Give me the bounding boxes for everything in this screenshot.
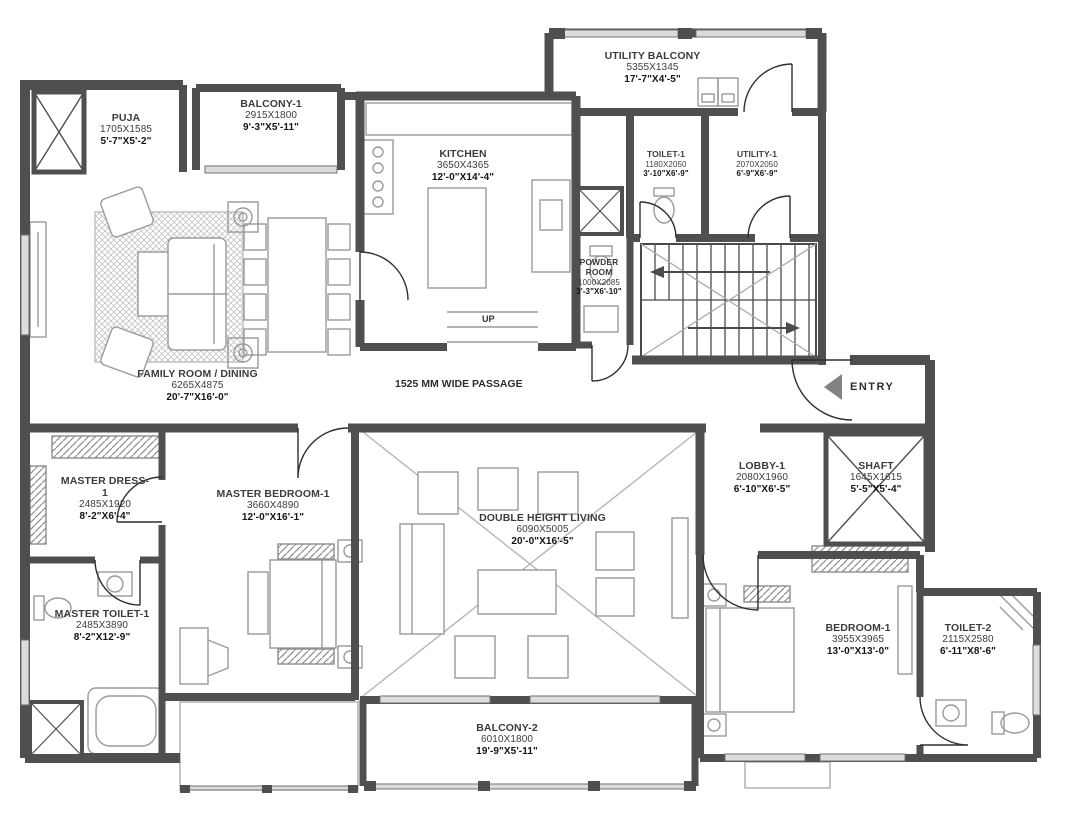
room-label-family-room: FAMILY ROOM / DINING 6265X4875 20'-7"X16… xyxy=(105,368,290,403)
room-dims-ft: 5'-5"X5'-4" xyxy=(828,484,924,496)
room-name: UTILITY BALCONY xyxy=(565,50,740,62)
room-label-utility-balcony: UTILITY BALCONY 5355X1345 17'-7"X4'-5" xyxy=(565,50,740,85)
chair xyxy=(478,468,518,510)
room-dims-mm: 2080X1960 xyxy=(716,472,808,484)
entry-door xyxy=(792,360,852,420)
room-name: LOBBY-1 xyxy=(716,460,808,472)
wc-icon xyxy=(1001,713,1029,733)
room-dims-ft: 13'-0"X13'-0" xyxy=(802,646,914,658)
utility-balcony-door xyxy=(744,64,792,112)
basin xyxy=(936,700,966,726)
toilet2-door xyxy=(920,697,968,745)
entry-label: ENTRY xyxy=(850,381,894,393)
master-bedroom-door xyxy=(298,428,348,478)
room-dims-ft: 9'-3"X5'-11" xyxy=(200,122,342,134)
room-dims-mm: 2915X1800 xyxy=(200,110,342,122)
room-name: TOILET-1 xyxy=(630,150,702,160)
chair xyxy=(528,636,568,678)
room-dims-ft: 17'-7"X4'-5" xyxy=(565,74,740,86)
room-dims-ft: 12'-0"X14'-4" xyxy=(398,172,528,184)
wc-tank xyxy=(590,246,612,256)
sofa xyxy=(400,524,444,634)
room-name: BALCONY-1 xyxy=(200,98,342,110)
room-name: MASTER BEDROOM-1 xyxy=(198,488,348,500)
up-label: UP xyxy=(482,314,495,324)
room-name: POWDER ROOM xyxy=(568,258,630,278)
terrace xyxy=(745,762,830,788)
room-name: BALCONY-2 xyxy=(432,722,582,734)
side-table xyxy=(702,714,726,736)
room-dims-mm: 1000X2085 xyxy=(568,278,630,287)
room-label-shaft: SHAFT 1645X1615 5'-5"X5'-4" xyxy=(828,460,924,495)
wardrobe xyxy=(52,436,160,458)
bed xyxy=(706,608,794,712)
room-label-puja: PUJA 1705X1585 5'-7"X5'-2" xyxy=(72,112,180,147)
room-label-double-height-living: DOUBLE HEIGHT LIVING 6090X5005 20'-0"X16… xyxy=(450,512,635,547)
room-dims-ft: 6'-10"X6'-5" xyxy=(716,484,808,496)
room-dims-mm: 1180X2050 xyxy=(630,160,702,169)
passage-label: 1525 MM WIDE PASSAGE xyxy=(395,378,575,390)
staircase xyxy=(641,244,816,357)
room-dims-mm: 6010X1800 xyxy=(432,734,582,746)
room-name: UTILITY-1 xyxy=(712,150,802,160)
bed xyxy=(270,560,336,648)
chair xyxy=(418,472,458,514)
room-label-master-toilet-1: MASTER TOILET-1 2485X3890 8'-2"X12'-9" xyxy=(38,608,166,643)
room-name: MASTER DRESS-1 xyxy=(60,475,150,499)
kitchen-sink-counter xyxy=(532,180,570,272)
room-dims-ft: 3'-3"X6'-10" xyxy=(568,287,630,296)
kitchen-door xyxy=(360,252,408,300)
sink xyxy=(540,200,562,230)
wardrobe xyxy=(30,466,46,544)
room-dims-ft: 6'-9"X6'-9" xyxy=(712,169,802,178)
entry-arrow-icon xyxy=(824,374,842,400)
chair xyxy=(596,578,634,616)
room-label-toilet-1: TOILET-1 1180X2050 3'-10"X6'-9" xyxy=(630,150,702,178)
dining-table xyxy=(268,218,326,352)
room-dims-mm: 2070X2050 xyxy=(712,160,802,169)
room-dims-ft: 8'-2"X6'-4" xyxy=(60,511,150,523)
room-dims-mm: 2115X2580 xyxy=(918,634,1018,646)
room-name: DOUBLE HEIGHT LIVING xyxy=(450,512,635,524)
room-dims-mm: 6265X4875 xyxy=(105,380,290,392)
room-dims-mm: 3955X3965 xyxy=(802,634,914,646)
room-label-balcony-2: BALCONY-2 6010X1800 19'-9"X5'-11" xyxy=(432,722,582,757)
room-dims-ft: 12'-0"X16'-1" xyxy=(198,512,348,524)
room-dims-mm: 2485X3890 xyxy=(38,620,166,632)
room-label-lobby-1: LOBBY-1 2080X1960 6'-10"X6'-5" xyxy=(716,460,808,495)
chair xyxy=(455,636,495,678)
basin xyxy=(584,306,618,332)
room-dims-mm: 3660X4890 xyxy=(198,500,348,512)
dresser xyxy=(180,628,208,684)
room-dims-ft: 6'-11"X8'-6" xyxy=(918,646,1018,658)
chair xyxy=(538,472,578,514)
wc-tank xyxy=(992,712,1004,734)
room-dims-mm: 2485X1920 xyxy=(60,499,150,511)
room-dims-ft: 20'-0"X16'-5" xyxy=(450,536,635,548)
room-label-master-dress-1: MASTER DRESS-1 2485X1920 8'-2"X6'-4" xyxy=(60,475,150,523)
stove xyxy=(363,140,393,214)
room-name: MASTER TOILET-1 xyxy=(38,608,166,620)
center-table xyxy=(478,570,556,614)
room-dims-mm: 6090X5005 xyxy=(450,524,635,536)
bathtub xyxy=(88,688,164,754)
room-name: KITCHEN xyxy=(398,148,528,160)
room-dims-ft: 3'-10"X6'-9" xyxy=(630,169,702,178)
room-name: BEDROOM-1 xyxy=(802,622,914,634)
wc-tank xyxy=(654,188,674,196)
room-dims-mm: 1645X1615 xyxy=(828,472,924,484)
master-toilet-door xyxy=(95,560,140,605)
room-label-utility-1: UTILITY-1 2070X2050 6'-9"X6'-9" xyxy=(712,150,802,178)
room-dims-ft: 19'-9"X5'-11" xyxy=(432,746,582,758)
powder-door xyxy=(592,345,628,381)
room-label-bedroom-1: BEDROOM-1 3955X3965 13'-0"X13'-0" xyxy=(802,622,914,657)
console xyxy=(672,518,688,618)
room-label-master-bedroom-1: MASTER BEDROOM-1 3660X4890 12'-0"X16'-1" xyxy=(198,488,348,523)
room-name: PUJA xyxy=(72,112,180,124)
room-dims-mm: 1705X1585 xyxy=(72,124,180,136)
room-dims-mm: 5355X1345 xyxy=(565,62,740,74)
kitchen-island xyxy=(428,188,486,288)
room-dims-mm: 3650X4365 xyxy=(398,160,528,172)
room-dims-ft: 5'-7"X5'-2" xyxy=(72,136,180,148)
room-label-toilet-2: TOILET-2 2115X2580 6'-11"X8'-6" xyxy=(918,622,1018,657)
kitchen-counter xyxy=(366,103,572,135)
room-name: FAMILY ROOM / DINING xyxy=(105,368,290,380)
room-name: SHAFT xyxy=(828,460,924,472)
floor-plan: PUJA 1705X1585 5'-7"X5'-2" BALCONY-1 291… xyxy=(0,0,1088,819)
room-dims-ft: 20'-7"X16'-0" xyxy=(105,392,290,404)
terrace xyxy=(180,702,358,790)
room-label-kitchen: KITCHEN 3650X4365 12'-0"X14'-4" xyxy=(398,148,528,183)
room-label-powder-room: POWDER ROOM 1000X2085 3'-3"X6'-10" xyxy=(568,258,630,296)
room-label-balcony-1: BALCONY-1 2915X1800 9'-3"X5'-11" xyxy=(200,98,342,133)
room-name: TOILET-2 xyxy=(918,622,1018,634)
bench xyxy=(248,572,268,634)
utility1-door xyxy=(748,196,790,238)
room-dims-ft: 8'-2"X12'-9" xyxy=(38,632,166,644)
